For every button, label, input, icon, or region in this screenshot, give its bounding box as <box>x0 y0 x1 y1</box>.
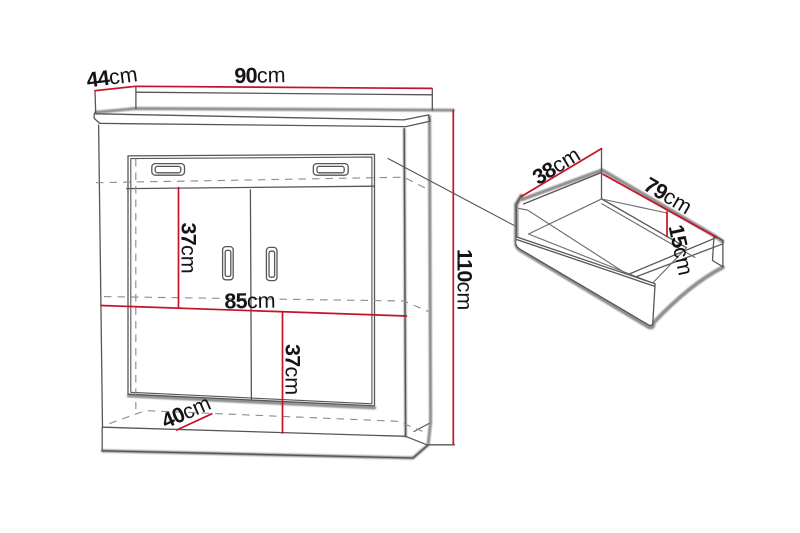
svg-text:90cm: 90cm <box>234 63 286 88</box>
svg-text:37cm: 37cm <box>177 223 201 274</box>
svg-text:110cm: 110cm <box>453 249 477 310</box>
svg-text:37cm: 37cm <box>281 344 305 395</box>
svg-text:85cm: 85cm <box>224 289 276 314</box>
